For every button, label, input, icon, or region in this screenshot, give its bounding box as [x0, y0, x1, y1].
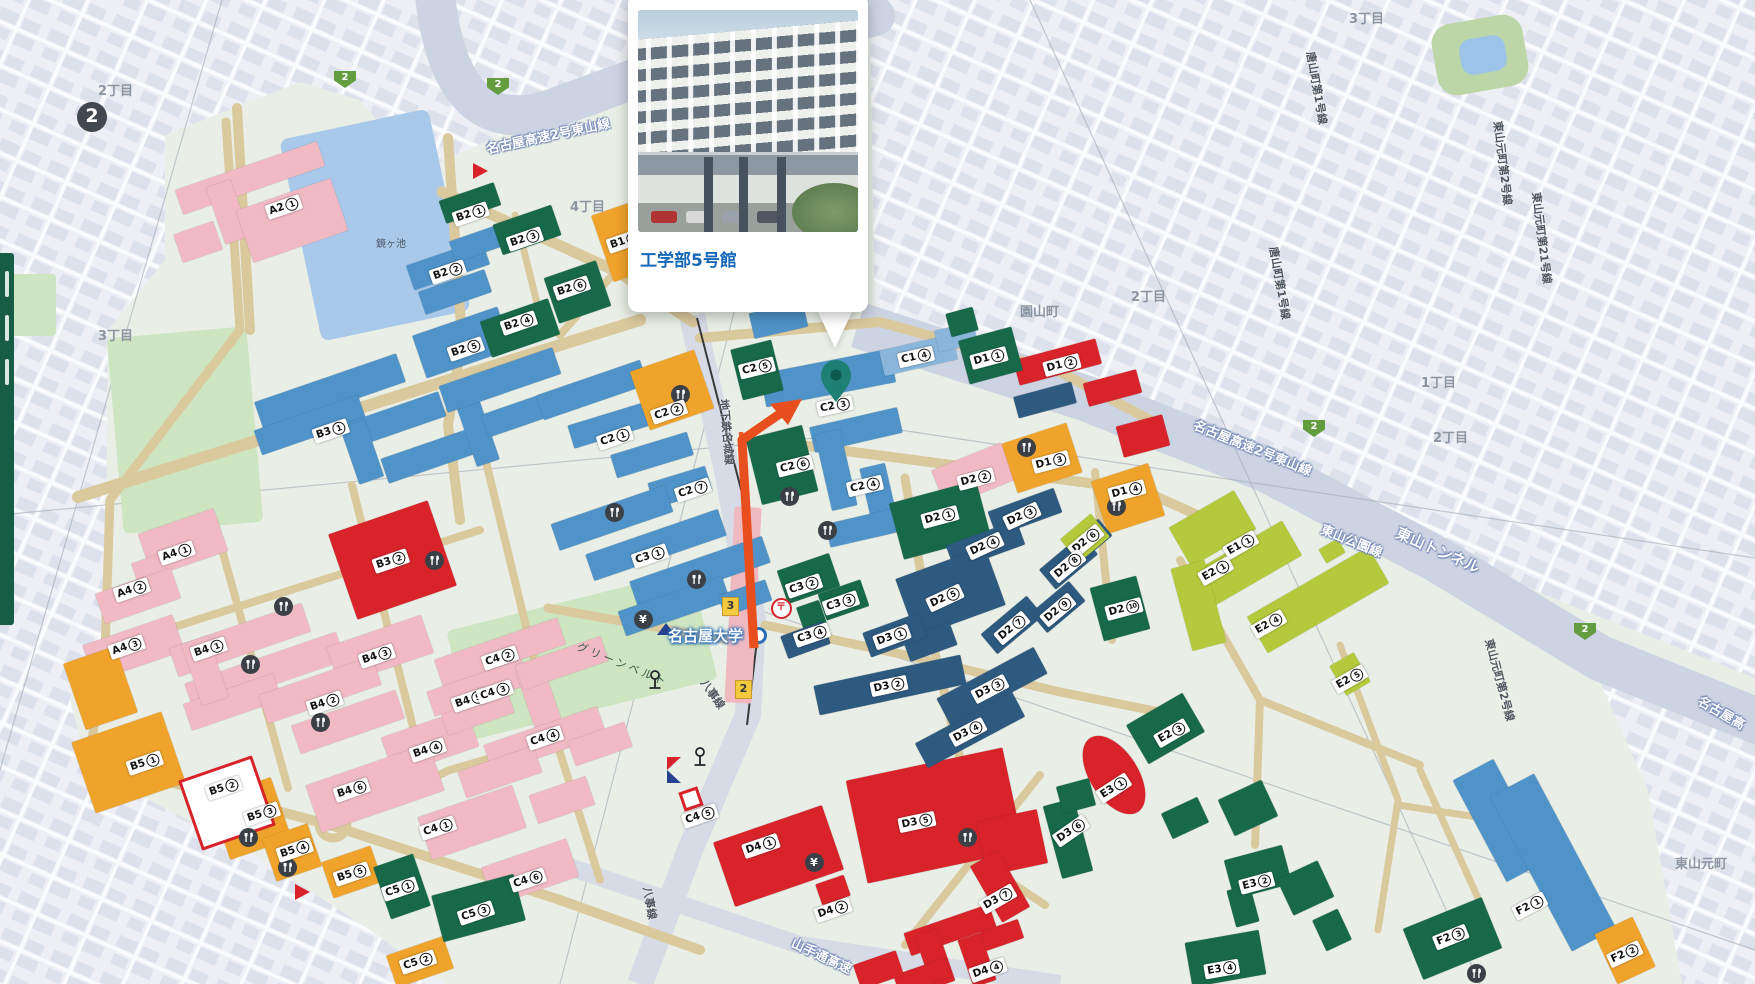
building-number: 4 — [545, 727, 562, 744]
station-exit-2[interactable]: 2 — [735, 680, 752, 699]
building-popup[interactable]: 工学部5号館 — [628, 0, 868, 312]
building-number: 2 — [804, 575, 821, 592]
red-blue-flag-marker — [667, 770, 681, 783]
building-number: 1 — [438, 817, 455, 834]
building-number: 4 — [519, 312, 536, 329]
restaurant-icon[interactable] — [241, 655, 260, 674]
area-label: 3丁目 — [1349, 8, 1384, 27]
restaurant-icon[interactable] — [1017, 438, 1036, 457]
restaurant-icon[interactable] — [239, 828, 258, 847]
area-label: 3丁目 — [98, 325, 133, 344]
building-number: 1 — [892, 626, 909, 643]
building-number: 6 — [795, 456, 811, 472]
building-number: 2 — [391, 550, 408, 567]
building-number: 1 — [209, 638, 226, 655]
building-number: 1 — [615, 427, 632, 444]
building-number: 5 — [757, 358, 773, 374]
restaurant-icon[interactable] — [605, 503, 624, 522]
building-number: 4 — [916, 347, 932, 363]
restaurant-icon[interactable] — [687, 570, 706, 589]
building-number: 1 — [284, 196, 301, 213]
area-label: 鏡ヶ池 — [376, 235, 406, 250]
building-number: 2 — [224, 777, 241, 794]
monument-gate-icon — [692, 747, 708, 769]
building-number: 4 — [428, 739, 445, 756]
restaurant-icon[interactable] — [780, 487, 799, 506]
photo-pillar — [739, 157, 748, 232]
building-number: 4 — [1128, 481, 1144, 497]
building-number: 5 — [352, 863, 369, 880]
atm-yen-icon[interactable]: ¥ — [634, 610, 653, 629]
building-number: 5 — [918, 812, 933, 827]
building-number: 2 — [890, 676, 905, 691]
building-number: 4 — [812, 624, 829, 641]
restaurant-icon[interactable] — [958, 828, 977, 847]
area-label: 2丁目 — [1433, 427, 1468, 446]
building-number: 3 — [836, 397, 851, 412]
building-number: 3 — [841, 592, 858, 609]
building-number: 1 — [650, 545, 667, 562]
building-number: 6 — [528, 869, 545, 886]
area-label: 2丁目 — [98, 80, 133, 99]
station-exit-3[interactable]: 3 — [722, 597, 739, 616]
area-label: 園山町 — [1020, 301, 1059, 320]
building-number: 7 — [693, 479, 710, 496]
post-office-icon[interactable]: 〒 — [771, 598, 792, 619]
restaurant-icon[interactable] — [274, 597, 293, 616]
building-number: 3 — [127, 636, 144, 653]
red-blue-flag-marker — [667, 757, 681, 770]
building-number: 2 — [500, 647, 517, 664]
building-number: 3 — [476, 902, 493, 919]
building-number: 1 — [331, 420, 348, 437]
building-number: 3 — [1052, 452, 1068, 468]
photo-facade — [638, 19, 858, 174]
restaurant-icon[interactable] — [425, 551, 444, 570]
building-number: 4 — [865, 476, 881, 492]
building-number: 2 — [448, 261, 465, 278]
restaurant-icon[interactable] — [311, 713, 330, 732]
building-number: 10 — [1125, 599, 1141, 615]
area-label: 東山元町 — [1675, 853, 1727, 872]
building-number: 1 — [941, 507, 957, 523]
photo-pillar — [704, 157, 713, 232]
building-number: 2 — [325, 692, 342, 709]
building-number: 1 — [400, 878, 417, 895]
red-triangle-marker — [473, 163, 488, 179]
building-number: 2 — [833, 899, 850, 916]
building-number: 4 — [295, 839, 312, 856]
restaurant-icon[interactable] — [818, 521, 837, 540]
building-number: 2 — [1063, 355, 1079, 371]
building-number: 5 — [466, 338, 483, 355]
building-number: 5 — [700, 805, 717, 822]
building-number: 3 — [377, 645, 394, 662]
building-number: 2 — [669, 401, 686, 418]
area-label: 1丁目 — [1421, 372, 1456, 391]
building-number: 3 — [525, 228, 542, 245]
building-number: 2 — [1257, 873, 1273, 889]
building-number: 1 — [761, 835, 778, 852]
subway-line-number-badge: 2 — [77, 102, 107, 132]
building-number: 4 — [988, 959, 1005, 976]
red-triangle-marker — [295, 884, 310, 900]
building-number: 6 — [572, 277, 589, 294]
station-name-label: 名古屋大学 — [668, 625, 743, 646]
photo-car — [651, 211, 677, 223]
restaurant-icon[interactable] — [1467, 964, 1486, 983]
building-code: E3 — [1206, 962, 1223, 979]
building-number: 2 — [418, 951, 435, 968]
building-number: 6 — [352, 779, 369, 796]
photo-trees — [792, 183, 858, 232]
building-photo — [638, 10, 858, 232]
subway-logo-icon — [750, 627, 767, 644]
building-number: 2 — [132, 579, 149, 596]
popup-tail — [816, 308, 854, 348]
building-number: 4 — [1223, 960, 1238, 975]
building-number: 1 — [471, 203, 488, 220]
popup-building-title: 工学部5号館 — [640, 246, 737, 271]
building-number: 1 — [990, 348, 1006, 364]
building-number: 1 — [177, 542, 194, 559]
area-label: 4丁目 — [570, 196, 605, 215]
photo-pillar — [777, 157, 786, 232]
sidebar-collapsed-tab[interactable] — [0, 253, 14, 625]
building-code: C2 — [819, 399, 837, 417]
building-number: 3 — [495, 681, 512, 698]
campus-map[interactable]: ¥¥〒2 A21A41A42A43B11B21B22B23B24B25B26B3… — [0, 0, 1755, 984]
area-label: 2丁目 — [1131, 286, 1166, 305]
building-number: 2 — [977, 469, 993, 485]
building-number: 1 — [145, 752, 162, 769]
atm-yen-icon[interactable]: ¥ — [805, 853, 824, 872]
building-number: 3 — [262, 803, 279, 820]
